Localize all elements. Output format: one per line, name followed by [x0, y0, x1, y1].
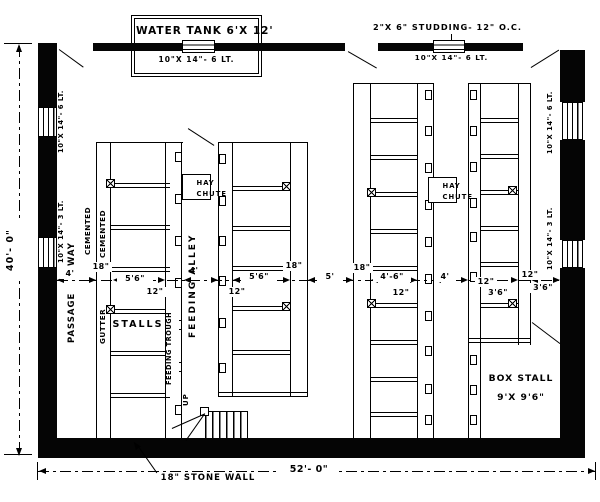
dim-label: 12": [475, 277, 497, 287]
block3-top-edge: [353, 83, 433, 84]
trough-stub: [470, 126, 477, 136]
wall-top-seg4: [378, 43, 433, 51]
trough-stub: [175, 236, 182, 246]
trough-stub: [175, 194, 182, 204]
dim-label: 4': [60, 269, 80, 279]
trough-stub: [425, 163, 432, 173]
dim-label: 4'-6": [373, 272, 411, 282]
stall-divider: [480, 226, 518, 231]
stall-divider: [370, 266, 417, 271]
stanchion-marker: [508, 299, 517, 308]
stall-divider: [370, 192, 417, 197]
dim-label: 3'6": [528, 283, 558, 293]
trough-stub: [425, 126, 432, 136]
trough-stub: [425, 311, 432, 321]
block2-trough-left: [218, 142, 219, 397]
stall-divider: [370, 303, 417, 308]
window-label-left-top: 10"X 14"- 6 LT.: [58, 82, 71, 162]
dim-label: 5': [319, 272, 341, 282]
way-label: WAY: [68, 238, 82, 270]
stairs-up-label: UP: [183, 392, 196, 408]
trough-stub: [470, 90, 477, 100]
dim-label: 12": [226, 287, 248, 297]
dim-arrow-up: [16, 44, 22, 52]
dim-arrow: [283, 277, 290, 283]
box-stall-size-label: 9'X 9'6": [490, 393, 552, 404]
dim-label: 12": [519, 270, 541, 280]
wall-top-seg5: [465, 43, 523, 51]
hay-chute-label-line2: CHUTE: [197, 189, 227, 200]
wall-top-seg2: [93, 43, 182, 51]
stanchion-marker: [282, 182, 291, 191]
window-top-right: [433, 40, 465, 53]
studding-note: 2"X 6" STUDDING- 12" O.C.: [365, 23, 530, 32]
feeding-trough-label: FEEDING TROUGH: [166, 302, 179, 394]
block3-gutter-inner: [370, 83, 371, 438]
stall-divider: [232, 266, 290, 271]
hay-chute-label-line2: CHUTE: [443, 192, 473, 203]
dim-label: 3'6": [483, 288, 513, 298]
stall-divider: [370, 229, 417, 234]
trough-stub: [219, 363, 226, 373]
wall-right-seg3: [560, 268, 585, 438]
trough-stub: [219, 154, 226, 164]
dim-arrow: [39, 468, 46, 474]
door-swing-alley-head: [188, 128, 215, 146]
stanchion-marker: [367, 299, 376, 308]
stone-wall-note: 18" STONE WALL: [152, 474, 264, 484]
dim-label: 5'6": [241, 272, 277, 282]
trough-stub: [425, 415, 432, 425]
stall-divider: [110, 393, 170, 398]
dim-arrow: [233, 277, 240, 283]
passage-label: PASSAGE: [68, 286, 82, 350]
dim-arrow: [410, 277, 417, 283]
top-right-window-label: 10"X 14"- 6 LT.: [404, 54, 499, 62]
trough-stub: [470, 162, 477, 172]
window-right-bottom: [562, 240, 583, 268]
stall-divider: [110, 225, 170, 230]
block4-gutter-inner: [518, 83, 519, 345]
hay-chute-label-line1: HAY: [197, 178, 215, 189]
wall-right-seg2: [560, 140, 585, 240]
trough-stub: [175, 152, 182, 162]
stanchion-marker: [367, 188, 376, 197]
trough-stub: [425, 90, 432, 100]
stanchion-marker: [508, 186, 517, 195]
door-swing-top-mid: [348, 51, 377, 69]
window-label-right-top: 10"X 14"- 6 LT.: [547, 84, 560, 162]
wall-left-seg2: [38, 137, 57, 237]
block3-trough-right: [433, 83, 434, 438]
box-stall-top-edge: [468, 338, 530, 343]
stall-divider: [110, 183, 170, 188]
wall-top-seg3: [215, 43, 345, 51]
dim-label: 4': [434, 272, 456, 282]
trough-stub: [425, 384, 432, 394]
gutter-label: GUTTER: [99, 303, 111, 349]
dim-label: 12": [390, 288, 412, 298]
dim-arrow: [588, 468, 595, 474]
dim-arrow: [461, 277, 468, 283]
cemented-right-label: CEMENTED: [99, 204, 111, 264]
stairs: [205, 411, 248, 438]
block2-gutter-outer: [307, 142, 308, 397]
cemented-left-label: CEMENTED: [84, 201, 96, 261]
block4-gutter-outer: [530, 83, 531, 345]
stall-divider: [480, 118, 518, 123]
dim-label: 18": [351, 263, 373, 273]
stall-divider: [110, 351, 170, 356]
dim-label: 12": [144, 287, 166, 297]
trough-stub: [175, 405, 182, 415]
hay-chute-label-line1: HAY: [443, 181, 461, 192]
stalls-label: STALLS: [112, 320, 164, 331]
block4-trough-right: [480, 83, 481, 438]
dim-arrow: [346, 277, 353, 283]
block1-gutter-outer: [96, 142, 97, 438]
water-tank-window-label: 10"X 14"- 6 LT.: [140, 56, 253, 65]
window-top-tank: [182, 40, 215, 53]
stall-divider: [370, 118, 417, 123]
stall-divider: [370, 377, 417, 382]
window-label-right-bottom: 10"X 14"- 3 LT.: [547, 201, 560, 277]
stall-divider: [370, 340, 417, 345]
stall-divider: [232, 226, 290, 231]
stanchion-marker: [106, 179, 115, 188]
wall-left-seg1: [38, 43, 57, 107]
trough-stub: [470, 232, 477, 242]
stall-divider: [370, 155, 417, 160]
trough-stub: [470, 385, 477, 395]
box-stall-label: BOX STALL: [485, 374, 557, 385]
block2-bottom-edge: [218, 392, 307, 397]
trough-stub: [470, 355, 477, 365]
stall-divider: [480, 262, 518, 267]
dim-arrow: [89, 277, 96, 283]
stall-divider: [110, 267, 170, 272]
stall-divider: [232, 350, 290, 355]
door-swing-top-right: [531, 50, 560, 69]
dim-arrow: [511, 277, 518, 283]
trough-stub: [425, 237, 432, 247]
trough-stub: [470, 415, 477, 425]
window-right-top: [562, 102, 583, 140]
stanchion-marker: [282, 302, 291, 311]
water-tank-label: WATER TANK 6'X 12': [136, 25, 257, 37]
wall-bottom: [38, 438, 585, 458]
window-left-top: [38, 107, 57, 137]
dim-arrow: [158, 277, 165, 283]
trough-stub: [219, 236, 226, 246]
dim-arrow-down: [16, 448, 22, 456]
stall-divider: [110, 309, 170, 314]
dim-arrow: [308, 277, 315, 283]
hay-chute-box-left: HAY CHUTE: [182, 174, 211, 200]
window-left-bottom: [38, 237, 57, 268]
block3-gutter-outer: [353, 83, 354, 438]
overall-width-label: 52'- 0": [280, 464, 338, 475]
trough-stub: [219, 318, 226, 328]
dim-label: 18": [283, 261, 305, 271]
dim-label: 5'6": [117, 274, 153, 284]
door-swing-box-stall: [532, 322, 561, 344]
stall-divider: [480, 154, 518, 159]
overall-height-label: 40'- 0": [6, 220, 21, 280]
block4-top-edge: [468, 83, 530, 84]
stall-divider: [370, 412, 417, 417]
floor-plan: UP HAY CHUTE HAY CHUTE 4' 18" 5'6" 12" 4…: [0, 0, 600, 502]
wall-right-seg1: [560, 50, 585, 102]
hay-chute-box-right: HAY CHUTE: [428, 177, 457, 203]
wall-left-seg3: [38, 268, 57, 438]
trough-stub: [425, 346, 432, 356]
feeding-alley-label: FEEDING ALLEY: [189, 226, 206, 346]
door-swing-top-left: [59, 49, 84, 68]
trough-stub: [425, 274, 432, 284]
dim-arrow: [211, 277, 218, 283]
block3-trough-left: [417, 83, 418, 438]
